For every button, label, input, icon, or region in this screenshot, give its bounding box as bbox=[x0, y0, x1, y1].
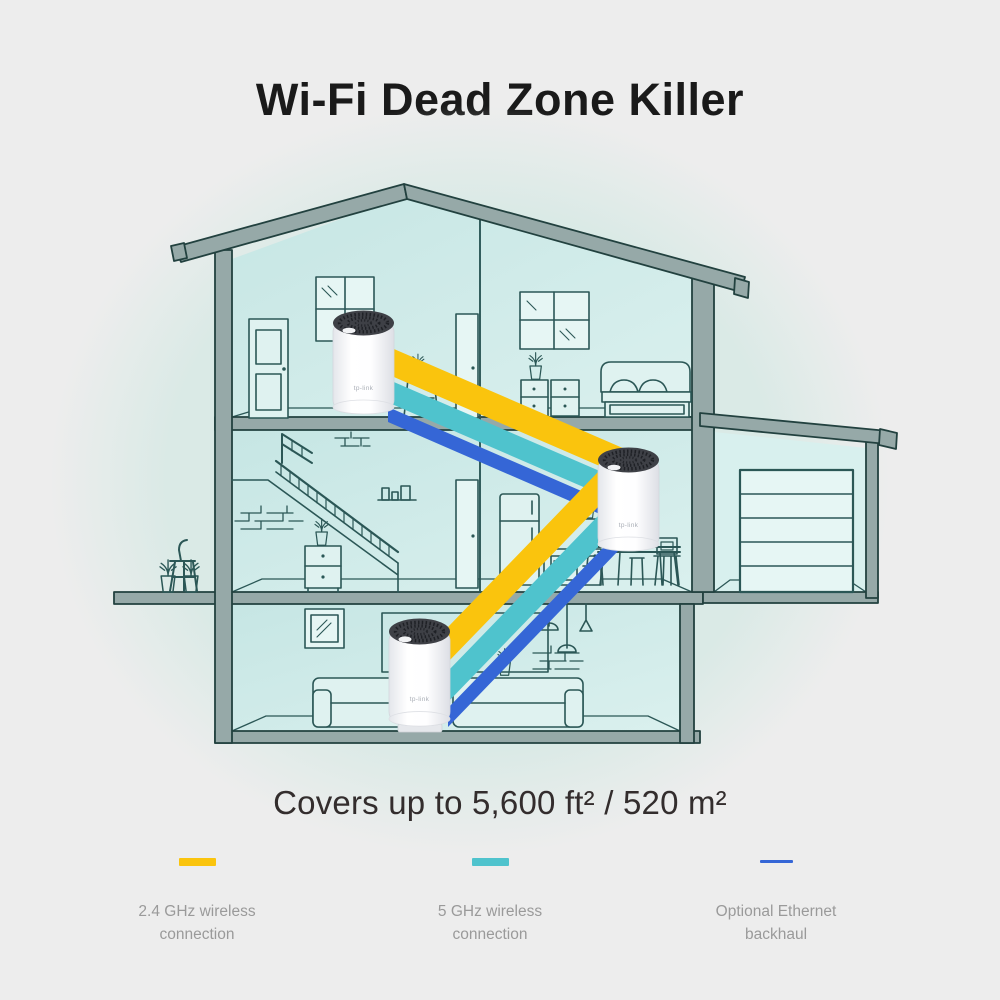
ground-right-wall bbox=[680, 604, 694, 743]
legend-label-ethernet: Optional Ethernet backhaul bbox=[690, 900, 862, 947]
house-cutaway-illustration: tp-link bbox=[0, 0, 1000, 1000]
legend-swatch-ethernet bbox=[760, 860, 793, 864]
deco-unit-ground bbox=[389, 619, 450, 732]
hall-door bbox=[456, 480, 478, 588]
door bbox=[249, 319, 288, 418]
legend-swatch-5g bbox=[472, 858, 509, 866]
legend-swatch-2g4 bbox=[179, 858, 216, 866]
legend-label-5g: 5 GHz wireless connection bbox=[404, 900, 576, 947]
deco-unit-attic bbox=[333, 311, 394, 415]
left-wall bbox=[215, 250, 232, 743]
legend-label-2g4: 2.4 GHz wireless connection bbox=[111, 900, 283, 947]
page: Wi-Fi Dead Zone Killer bbox=[0, 0, 1000, 1000]
window bbox=[520, 292, 589, 349]
deco-unit-middle bbox=[598, 448, 659, 552]
legend-item-2g4: 2.4 GHz wireless connection bbox=[111, 857, 283, 947]
garage-right-wall bbox=[866, 440, 878, 598]
picture-frame bbox=[305, 609, 344, 648]
nightstand bbox=[551, 380, 579, 416]
bed bbox=[601, 362, 691, 417]
legend-item-ethernet: Optional Ethernet backhaul bbox=[690, 857, 862, 947]
garage-door bbox=[740, 470, 853, 592]
right-wall-upper bbox=[692, 274, 714, 592]
coverage-text: Covers up to 5,600 ft² / 520 m² bbox=[0, 784, 1000, 822]
legend-item-5g: 5 GHz wireless connection bbox=[404, 857, 576, 947]
middle-floor-slab bbox=[114, 592, 703, 604]
garage-floor-slab bbox=[703, 592, 878, 603]
ground-floor-slab bbox=[215, 731, 700, 743]
garage bbox=[740, 470, 853, 592]
